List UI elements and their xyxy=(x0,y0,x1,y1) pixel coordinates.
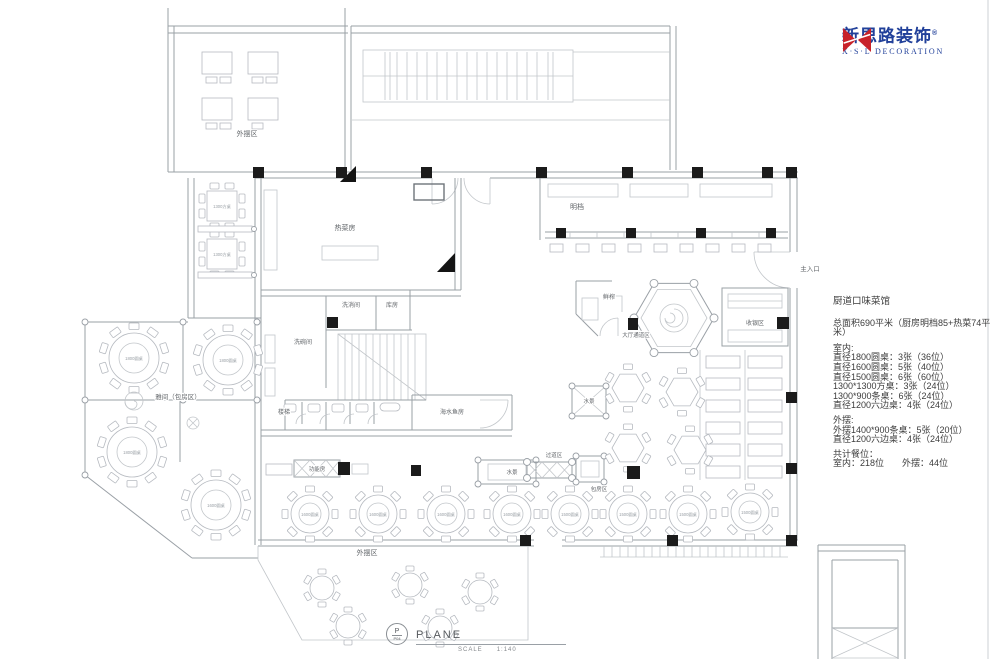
xsl-icon-text: X.S.L xyxy=(850,46,862,51)
registered-mark: ® xyxy=(932,30,937,37)
scale-label: SCALE xyxy=(458,647,483,653)
stair-core xyxy=(818,545,905,659)
label-hall-corridor: 大厅通道区 xyxy=(622,331,650,339)
booth-seating xyxy=(700,350,782,480)
table-label: 1500圆桌 xyxy=(679,511,698,518)
bubble-sheet: P04 xyxy=(393,636,400,641)
drawing-number-bubble: P P04 xyxy=(386,623,408,645)
label-private-zone: 包房区 xyxy=(591,485,608,493)
hex-feature xyxy=(630,279,718,356)
escalators xyxy=(345,8,676,170)
open-kitchen-counter xyxy=(540,178,788,252)
indoor-item: 直径1200六边桌：4张（24位） xyxy=(833,401,991,411)
table-label: 1500圆桌 xyxy=(619,511,638,518)
table-label: 1600圆桌 xyxy=(503,511,522,518)
label-main-entrance: 主入口 xyxy=(800,264,820,273)
label-stairs: 楼梯 xyxy=(278,408,290,416)
label-juice-bar: 鲜榨 xyxy=(603,293,615,301)
label-outdoor-bottom: 外摆区 xyxy=(357,548,378,557)
scale-value: 1:140 xyxy=(497,647,517,653)
label-function-room: 功能房 xyxy=(309,465,326,473)
label-water-1: 水景 xyxy=(583,397,595,405)
xsl-logo-icon: X.S.L xyxy=(842,25,872,55)
label-storage: 库房 xyxy=(386,301,398,309)
label-hot-kitchen: 热菜房 xyxy=(335,223,356,232)
label-dishwash: 洗碗间 xyxy=(294,338,312,346)
drawing-title: PLANE xyxy=(416,629,462,641)
table-label: 1600圆桌 xyxy=(369,511,388,518)
table-label: 1800圆桌 xyxy=(125,355,144,362)
private-round-rooms xyxy=(82,319,263,558)
title-block: P P04 PLANE SCALE 1:140 xyxy=(386,623,606,653)
label-outdoor-top: 外摆区 xyxy=(237,129,258,138)
outdoor-item: 直径1200六边桌：4张（24位） xyxy=(833,435,991,445)
label-seafood-room: 海水鱼房 xyxy=(440,408,464,416)
total-line: 室内：218位 外摆：44位 xyxy=(833,459,991,469)
table-label: 1500圆桌 xyxy=(561,511,580,518)
total-area-line: 总面积690平米（厨房明档85+热菜74平米） xyxy=(833,319,991,338)
drawing-sheet: 外摆区 热菜房 明档 洗消间 库房 洗碗间 楼梯 海水鱼房 雅间（包房区） 鲜榨… xyxy=(0,0,1000,659)
table-label: 1300方桌 xyxy=(213,203,232,210)
company-logo: X.S.L 新思路装饰® X·S·L DECORATION xyxy=(842,25,944,56)
label-cashier: 收银区 xyxy=(746,319,764,327)
juice-bar xyxy=(576,281,622,336)
label-private-rooms: 雅间（包房区） xyxy=(155,392,201,401)
table-label: 1600圆桌 xyxy=(437,511,456,518)
label-open-kitchen: 明档 xyxy=(570,202,584,211)
table-label: 1800圆桌 xyxy=(123,449,142,456)
table-label: 1500圆桌 xyxy=(741,509,760,516)
table-label: 1600圆桌 xyxy=(207,502,226,509)
restaurant-title: 厨道口味菜馆 xyxy=(833,297,991,307)
table-label: 1600圆桌 xyxy=(301,511,320,518)
table-label: 1800圆桌 xyxy=(219,357,238,364)
label-wash-disinfect: 洗消间 xyxy=(342,301,360,309)
hex-tables xyxy=(605,364,713,474)
table-label: 1300方桌 xyxy=(213,251,232,258)
bubble-letter: P xyxy=(392,628,403,636)
kitchen xyxy=(261,166,512,436)
terrace-top xyxy=(168,8,348,172)
dining-tables-row xyxy=(282,484,778,542)
label-water-2: 水景 xyxy=(506,468,518,476)
label-walkway: 过道区 xyxy=(546,451,563,459)
stats-panel: 厨道口味菜馆 总面积690平米（厨房明档85+热菜74平米） 室内: 直径180… xyxy=(833,297,991,469)
